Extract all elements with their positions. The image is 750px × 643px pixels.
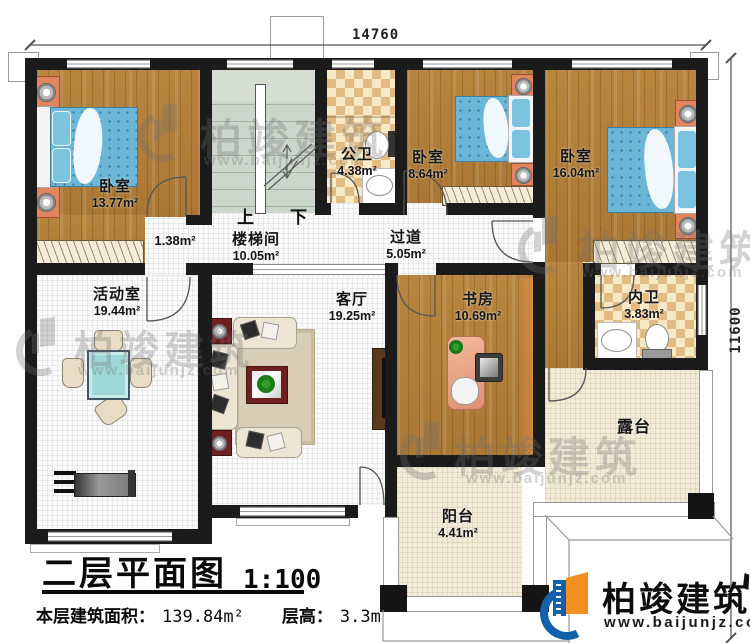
- logo-building-icon: [566, 572, 588, 614]
- brand-swoosh-icon: [518, 212, 570, 270]
- room-label-activity-room: 活动室19.44m²: [93, 286, 141, 318]
- floor-area-label: 本层建筑面积：: [36, 602, 155, 627]
- room-label-stairwell: 楼梯间10.05m²: [232, 231, 280, 263]
- stair-up-label: 上: [237, 203, 254, 228]
- room-label-balcony: 阳台4.41m²: [438, 508, 478, 540]
- logo-tower-icon: [553, 580, 566, 616]
- room-label-terrace: 露台: [617, 419, 651, 438]
- floor-plan: 柏竣建筑 www.baijunjz.com 柏竣建筑 www.baijunjz.…: [0, 0, 750, 643]
- room-label-study: 书房10.69m²: [455, 291, 502, 323]
- page-title: 二层平面图: [42, 546, 227, 595]
- dimension-top: 14760: [352, 27, 399, 43]
- room-label-public-bathroom: 公卫4.38m²: [337, 146, 377, 178]
- floor-height-label: 层高：: [282, 602, 333, 627]
- room-label-corridor: 过道5.05m²: [386, 229, 426, 261]
- stats-line: 本层建筑面积： 139.84m² 层高： 3.3m: [36, 602, 381, 627]
- dimension-right: 11600: [728, 300, 744, 360]
- watermark-url: www.baijunjz.com: [78, 362, 239, 379]
- brand-swoosh-icon: [138, 100, 190, 158]
- stair-down-label: 下: [290, 203, 307, 228]
- floor-area-value: 139.84m²: [162, 607, 244, 627]
- title-underline: [42, 590, 304, 594]
- brand-swoosh-icon: [16, 314, 68, 372]
- room-label-bedroom-1: 卧室13.77m²: [92, 178, 139, 210]
- room-label-inner-bathroom: 内卫3.83m²: [624, 289, 664, 321]
- title-block: 二层平面图 1:100: [42, 546, 321, 595]
- room-label-nook: 1.38m²: [154, 233, 195, 248]
- room-label-living-room: 客厅19.25m²: [329, 291, 376, 323]
- room-label-bedroom-3: 卧室16.04m²: [553, 148, 600, 180]
- watermark-url: www.baijunjz.com: [582, 264, 743, 281]
- brand-url: www.baijunjz.com: [604, 614, 750, 631]
- floor-height-value: 3.3m: [340, 607, 381, 627]
- watermark-url: www.baijunjz.com: [466, 470, 627, 487]
- brand-swoosh-icon: [400, 418, 452, 476]
- brand-logo: 柏竣建筑 www.baijunjz.com: [540, 570, 750, 634]
- room-label-bedroom-2: 卧室8.64m²: [408, 149, 448, 181]
